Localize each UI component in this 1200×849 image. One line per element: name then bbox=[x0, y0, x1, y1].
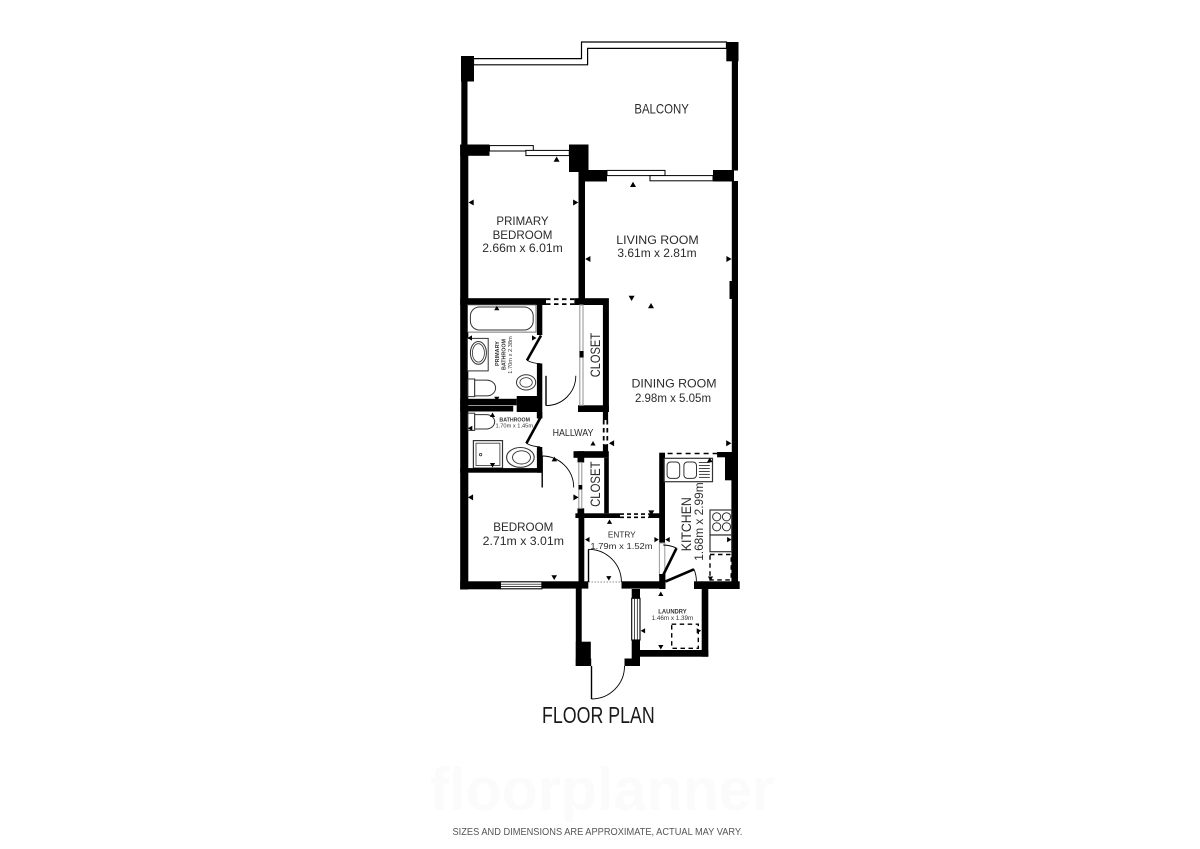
svg-text:1.70m x 1.45m: 1.70m x 1.45m bbox=[496, 424, 534, 430]
svg-text:CLOSET: CLOSET bbox=[588, 333, 603, 377]
svg-text:floorplanner: floorplanner bbox=[430, 756, 775, 823]
svg-text:1.46m x 1.39m: 1.46m x 1.39m bbox=[652, 615, 694, 622]
svg-text:1.68m x 2.99m: 1.68m x 2.99m bbox=[692, 482, 706, 560]
svg-text:3.61m x 2.81m: 3.61m x 2.81m bbox=[617, 246, 696, 260]
svg-text:BEDROOM: BEDROOM bbox=[493, 520, 553, 534]
svg-text:FLOOR PLAN: FLOOR PLAN bbox=[542, 702, 655, 728]
svg-text:1.70m x 2.38m: 1.70m x 2.38m bbox=[508, 336, 514, 374]
svg-text:BALCONY: BALCONY bbox=[634, 101, 689, 117]
svg-text:DINING ROOM: DINING ROOM bbox=[631, 376, 716, 390]
svg-text:HALLWAY: HALLWAY bbox=[553, 428, 594, 439]
svg-text:2.98m x 5.05m: 2.98m x 5.05m bbox=[635, 391, 711, 405]
svg-text:BATHROOM: BATHROOM bbox=[499, 417, 530, 423]
svg-text:1.79m x 1.52m: 1.79m x 1.52m bbox=[590, 541, 652, 551]
svg-text:CLOSET: CLOSET bbox=[588, 462, 603, 507]
svg-text:2.71m x 3.01m: 2.71m x 3.01m bbox=[483, 534, 564, 548]
svg-text:BEDROOM: BEDROOM bbox=[493, 228, 553, 242]
svg-text:SIZES AND DIMENSIONS ARE APPRO: SIZES AND DIMENSIONS ARE APPROXIMATE, AC… bbox=[453, 827, 743, 838]
svg-text:ENTRY: ENTRY bbox=[608, 531, 637, 540]
svg-text:2.66m x 6.01m: 2.66m x 6.01m bbox=[482, 241, 563, 255]
svg-text:BATHROOM: BATHROOM bbox=[502, 339, 508, 370]
svg-text:PRIMARY: PRIMARY bbox=[496, 214, 548, 228]
svg-text:LIVING ROOM: LIVING ROOM bbox=[616, 233, 699, 247]
svg-text:PRIMARY: PRIMARY bbox=[495, 341, 501, 366]
